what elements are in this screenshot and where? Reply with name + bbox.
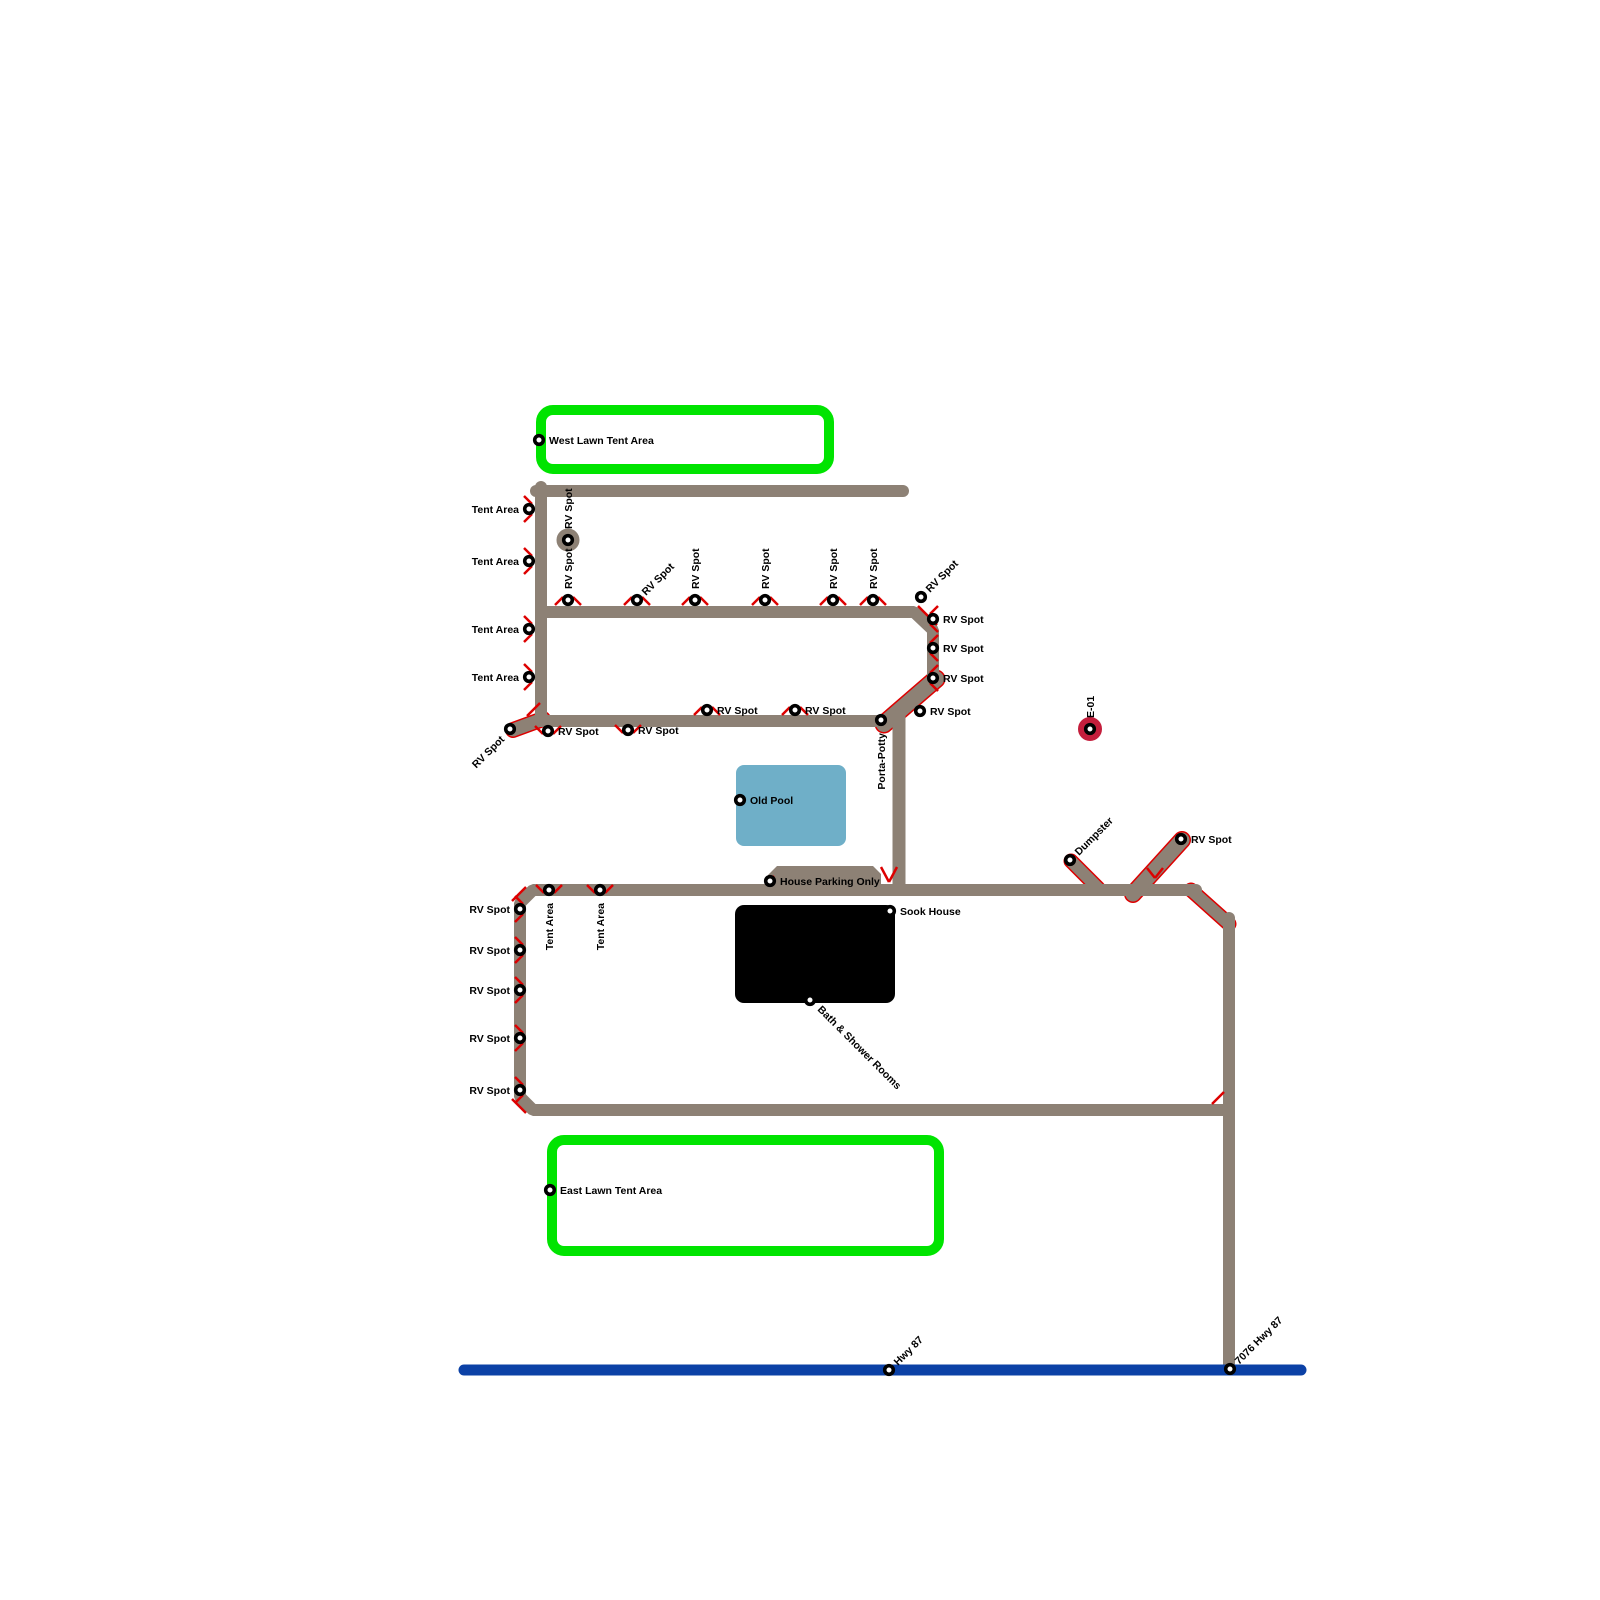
node-rv-spot-marker[interactable]: [516, 986, 525, 995]
label-rv-spot: RV Spot: [690, 548, 702, 589]
sook-house-building-area: [735, 905, 895, 1003]
label-rv-spot: RV Spot: [828, 548, 840, 589]
node-tent-area-marker[interactable]: [525, 625, 534, 634]
node-rv-spot-marker[interactable]: [916, 707, 925, 716]
label-rv-spot: RV Spot: [469, 1033, 510, 1045]
label-rv-spot: RV Spot: [469, 985, 510, 997]
node-rv-spot-marker[interactable]: [544, 727, 553, 736]
node-rv-spot-marker[interactable]: [929, 674, 938, 683]
node-rv-spot-marker[interactable]: [691, 596, 700, 605]
label-e-01: E-01: [1085, 696, 1097, 718]
label-rv-spot: RV Spot: [469, 904, 510, 916]
node-rv-spot-marker[interactable]: [516, 1086, 525, 1095]
node-tent-area-marker[interactable]: [525, 673, 534, 682]
node-rv-spot-marker[interactable]: [917, 593, 926, 602]
label-rv-spot: RV Spot: [1191, 834, 1232, 846]
campground-map-svg: West Lawn Tent AreaTent AreaTent AreaTen…: [0, 0, 1600, 1600]
label-tent-area: Tent Area: [595, 903, 607, 950]
label-tent-area: Tent Area: [472, 624, 519, 636]
node-rv-spot-marker[interactable]: [506, 725, 515, 734]
label-rv-spot: RV Spot: [717, 705, 758, 717]
campground-map-canvas: West Lawn Tent AreaTent AreaTent AreaTen…: [0, 0, 1600, 1600]
label-tent-area: Tent Area: [544, 903, 556, 950]
label-porta-potty: Porta-Potty: [876, 733, 888, 790]
label-east-lawn-tent-area: East Lawn Tent Area: [560, 1185, 662, 1197]
node-rv-spot-marker[interactable]: [829, 596, 838, 605]
label-rv-spot: RV Spot: [563, 488, 575, 529]
node-sook-house-marker[interactable]: [886, 907, 895, 916]
node-old-pool-marker[interactable]: [736, 796, 745, 805]
label-rv-spot: RV Spot: [563, 548, 575, 589]
label-rv-spot: RV Spot: [930, 706, 971, 718]
node-east-lawn-tent-area-marker[interactable]: [546, 1186, 555, 1195]
label-rv-spot: RV Spot: [943, 643, 984, 655]
node-house-parking-only-marker[interactable]: [766, 877, 775, 886]
node-tent-area-marker[interactable]: [545, 886, 554, 895]
node-porta-potty-marker[interactable]: [877, 716, 886, 725]
node-rv-spot-marker[interactable]: [516, 1034, 525, 1043]
node-bath-shower-rooms-marker[interactable]: [806, 996, 815, 1005]
label-rv-spot: RV Spot: [868, 548, 880, 589]
label-rv-spot: RV Spot: [469, 1085, 510, 1097]
label-sook-house: Sook House: [900, 906, 961, 918]
label-west-lawn-tent-area: West Lawn Tent Area: [549, 435, 654, 447]
node-tent-area-marker[interactable]: [525, 557, 534, 566]
label-house-parking-only: House Parking Only: [780, 876, 880, 888]
label-rv-spot: RV Spot: [469, 945, 510, 957]
label-rv-spot: RV Spot: [805, 705, 846, 717]
node-west-lawn-tent-area-marker[interactable]: [535, 436, 544, 445]
node-7076-hwy-87-marker[interactable]: [1226, 1365, 1235, 1374]
node-rv-spot-marker[interactable]: [1177, 835, 1186, 844]
label-rv-spot: RV Spot: [760, 548, 772, 589]
label-tent-area: Tent Area: [472, 504, 519, 516]
node-rv-spot-marker[interactable]: [791, 706, 800, 715]
label-rv-spot: RV Spot: [943, 614, 984, 626]
node-rv-spot-marker[interactable]: [516, 946, 525, 955]
node-rv-spot-marker[interactable]: [516, 905, 525, 914]
label-old-pool: Old Pool: [750, 795, 793, 807]
label-rv-spot: RV Spot: [558, 726, 599, 738]
label-rv-spot: RV Spot: [943, 673, 984, 685]
label-tent-area: Tent Area: [472, 672, 519, 684]
node-e-01-marker[interactable]: [1086, 725, 1095, 734]
node-rv-spot-marker[interactable]: [633, 596, 642, 605]
node-rv-spot-marker[interactable]: [929, 615, 938, 624]
node-rv-spot-marker[interactable]: [564, 536, 573, 545]
node-tent-area-marker[interactable]: [596, 886, 605, 895]
node-dumpster-marker[interactable]: [1066, 856, 1075, 865]
node-rv-spot-marker[interactable]: [564, 596, 573, 605]
node-rv-spot-marker[interactable]: [703, 706, 712, 715]
node-rv-spot-marker[interactable]: [761, 596, 770, 605]
node-hwy-87-marker[interactable]: [885, 1366, 894, 1375]
label-tent-area: Tent Area: [472, 556, 519, 568]
node-tent-area-marker[interactable]: [525, 505, 534, 514]
node-rv-spot-marker[interactable]: [929, 644, 938, 653]
node-rv-spot-marker[interactable]: [624, 726, 633, 735]
node-rv-spot-marker[interactable]: [869, 596, 878, 605]
label-rv-spot: RV Spot: [638, 725, 679, 737]
